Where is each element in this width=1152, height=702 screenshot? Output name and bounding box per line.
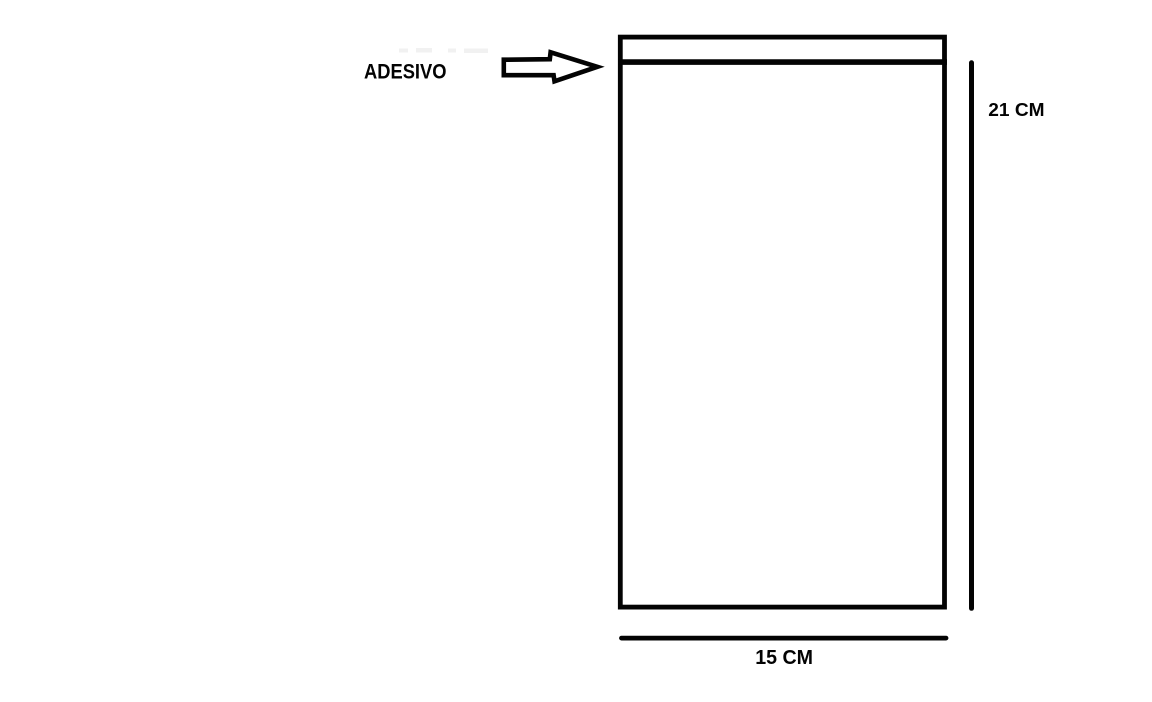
svg-text:21 CM: 21 CM <box>988 100 1044 121</box>
svg-text:ADESIVO: ADESIVO <box>364 60 447 84</box>
svg-text:15 CM: 15 CM <box>755 647 813 669</box>
